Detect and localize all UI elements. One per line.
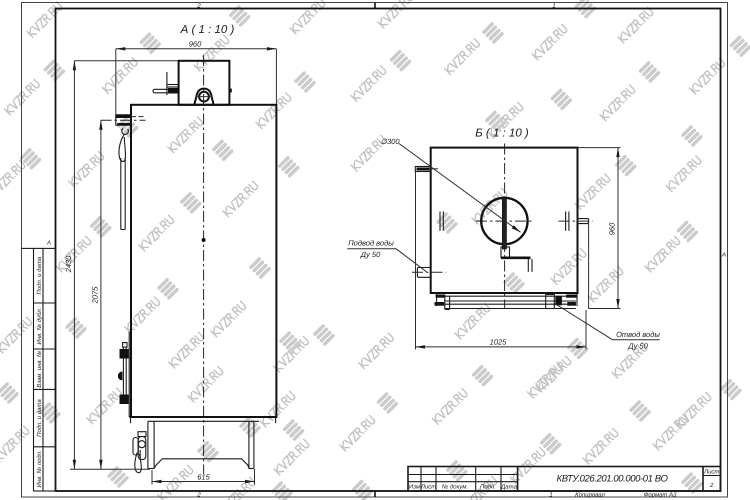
svg-text:615: 615 [197, 472, 210, 481]
svg-text:Подвод воды: Подвод воды [348, 239, 394, 248]
svg-text:∅300: ∅300 [380, 137, 400, 146]
svg-text:А: А [721, 252, 726, 259]
svg-text:2: 2 [196, 3, 201, 10]
svg-text:Формат А3: Формат А3 [644, 492, 677, 499]
svg-text:Б ( 1 : 10 ): Б ( 1 : 10 ) [475, 128, 529, 140]
svg-text:1: 1 [552, 3, 555, 10]
svg-text:Лист: Лист [420, 484, 436, 491]
svg-text:1: 1 [549, 492, 552, 499]
svg-text:1025: 1025 [490, 338, 508, 347]
svg-text:2: 2 [196, 492, 201, 499]
svg-text:Изм: Изм [409, 484, 420, 491]
svg-text:КВТУ.026.201.00.000-01 ВО: КВТУ.026.201.00.000-01 ВО [557, 474, 669, 485]
svg-text:Подп.: Подп. [480, 484, 496, 491]
svg-text:Дата: Дата [500, 484, 517, 491]
svg-text:А ( 1 : 10 ): А ( 1 : 10 ) [180, 24, 235, 36]
svg-text:Подп. и дата: Подп. и дата [36, 399, 43, 437]
svg-text:Ду 50: Ду 50 [627, 342, 648, 351]
svg-text:Ду 50: Ду 50 [360, 250, 381, 259]
svg-text:2430: 2430 [64, 255, 73, 274]
svg-text:2: 2 [709, 482, 714, 489]
svg-text:2075: 2075 [90, 286, 99, 305]
svg-text:960: 960 [189, 40, 202, 49]
svg-text:960: 960 [607, 222, 616, 235]
svg-text:Отвод воды: Отвод воды [616, 330, 660, 339]
svg-text:Инв. № дубл.: Инв. № дубл. [36, 308, 43, 345]
svg-text:Взам. инв. №: Взам. инв. № [36, 350, 43, 388]
svg-text:А: А [46, 240, 51, 247]
svg-text:№ докум.: № докум. [442, 484, 468, 491]
svg-text:Подп. и дата: Подп. и дата [36, 256, 43, 294]
svg-text:Лист: Лист [703, 469, 719, 476]
svg-text:Копировал: Копировал [575, 492, 605, 499]
svg-text:Инв. № подл.: Инв. № подл. [36, 450, 43, 487]
